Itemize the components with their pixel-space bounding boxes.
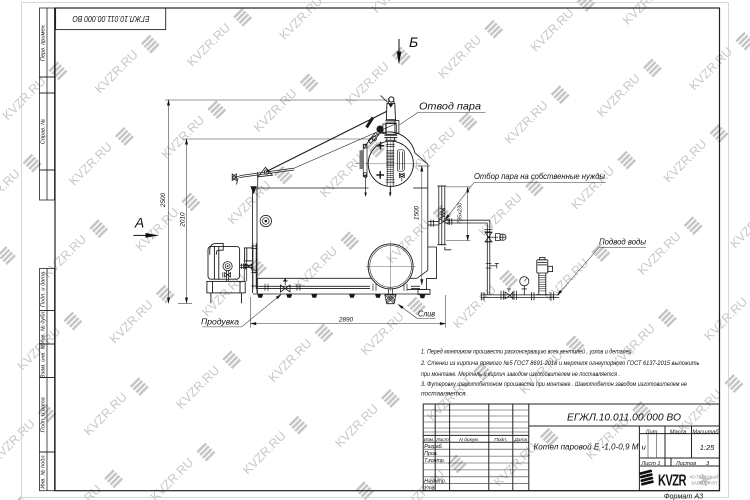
- svg-text:Подвод воды: Подвод воды: [599, 237, 646, 247]
- svg-text:2010: 2010: [179, 212, 186, 228]
- svg-text:KVZR.RU: KVZR.RU: [476, 190, 525, 239]
- svg-text:Взам. инв. №: Взам. инв. №: [41, 343, 47, 378]
- svg-text:KVZR.RU: KVZR.RU: [81, 390, 130, 439]
- svg-text:2. Стенки из кирпича прямого: 2. Стенки из кирпича прямого №5 ГОСТ 869…: [420, 360, 699, 367]
- svg-text:KVZR.RU: KVZR.RU: [174, 363, 223, 412]
- svg-text:KVZR.RU: KVZR.RU: [148, 455, 197, 500]
- svg-text:KVZR.RU: KVZR.RU: [41, 232, 90, 281]
- svg-text:KVZR.RU: KVZR.RU: [358, 309, 407, 358]
- svg-text:KVZR.RU: KVZR.RU: [15, 324, 64, 373]
- svg-text:Подп. и дата: Подп. и дата: [41, 272, 47, 307]
- svg-text:ЗАВОД РЭП: ЗАВОД РЭП: [691, 481, 718, 486]
- svg-text:при монтаже. Мертель и кирпич: при монтаже. Мертель и кирпич заводом из…: [421, 370, 620, 378]
- svg-text:Подп. и дата: Подп. и дата: [41, 397, 47, 432]
- svg-text:KVZR.RU: KVZR.RU: [292, 244, 341, 293]
- svg-text:Лит.: Лит.: [645, 430, 659, 436]
- svg-text:KVZR.RU: KVZR.RU: [184, 21, 233, 70]
- svg-text:Лист: Лист: [435, 437, 449, 443]
- svg-text:KVZR: KVZR: [658, 473, 687, 490]
- svg-text:КОТЕЛЬНЫЙ: КОТЕЛЬНЫЙ: [690, 473, 720, 480]
- svg-text:KVZR.RU: KVZR.RU: [436, 33, 485, 82]
- svg-text:и: и: [642, 443, 647, 452]
- svg-text:Отбор пара на собственные нужд: Отбор пара на собственные нужды: [474, 171, 605, 181]
- svg-text:KVZR.RU: KVZR.RU: [107, 298, 156, 347]
- svg-text:3. Футеровку шамотобетоном пр: 3. Футеровку шамотобетоном произвести пр…: [421, 380, 687, 388]
- svg-text:1:25: 1:25: [700, 443, 715, 452]
- svg-text:KVZR.RU: KVZR.RU: [277, 0, 326, 43]
- svg-text:KVZR.RU: KVZR.RU: [92, 47, 141, 96]
- svg-text:KVZR.RU: KVZR.RU: [0, 417, 38, 466]
- svg-text:2500: 2500: [160, 192, 167, 208]
- svg-text:Т.контр.: Т.контр.: [424, 458, 445, 464]
- svg-text:А: А: [134, 215, 144, 231]
- svg-text:KVZR.RU: KVZR.RU: [727, 202, 750, 251]
- svg-text:Масса: Масса: [670, 430, 687, 436]
- svg-text:KVZR.RU: KVZR.RU: [676, 387, 725, 436]
- svg-text:KVZR.RU: KVZR.RU: [702, 295, 750, 344]
- svg-text:Лист 1: Лист 1: [640, 461, 660, 467]
- svg-text:Формат А3: Формат А3: [664, 492, 703, 500]
- svg-text:Справ. №: Справ. №: [41, 119, 47, 144]
- svg-text:ЕГЖЛ.10.011.00.000 ВО: ЕГЖЛ.10.011.00.000 ВО: [567, 412, 681, 424]
- svg-text:Отвод пара: Отвод пара: [419, 101, 481, 113]
- svg-text:KVZR.RU: KVZR.RU: [0, 167, 23, 216]
- svg-text:KVZR.RU: KVZR.RU: [620, 0, 669, 28]
- svg-text:1500: 1500: [414, 205, 421, 220]
- svg-text:ЕГЖЛ.10.011.00.000 ВО: ЕГЖЛ.10.011.00.000 ВО: [73, 14, 150, 23]
- svg-text:KVZR.RU: KVZR.RU: [594, 71, 643, 120]
- svg-text:Инв. № подл.: Инв. № подл.: [41, 454, 47, 489]
- svg-text:Подп.: Подп.: [494, 437, 507, 443]
- svg-text:KVZR.RU: KVZR.RU: [225, 178, 274, 227]
- svg-text:KVZR.RU: KVZR.RU: [450, 283, 499, 332]
- svg-text:KVZR.RU: KVZR.RU: [528, 6, 577, 55]
- svg-text:Листов: Листов: [675, 461, 696, 467]
- svg-text:Инв. № дубл.: Инв. № дубл.: [41, 310, 47, 344]
- svg-text:KVZR.RU: KVZR.RU: [199, 271, 248, 320]
- svg-text:KVZR.RU: KVZR.RU: [66, 140, 115, 189]
- svg-text:Масштаб: Масштаб: [692, 430, 719, 436]
- svg-text:Н.контр.: Н.контр.: [424, 479, 446, 485]
- svg-text:Перв. примен.: Перв. примен.: [41, 24, 47, 61]
- svg-text:Слив: Слив: [418, 309, 436, 319]
- svg-text:Котел паровой Е -1,0-0,9 М: Котел паровой Е -1,0-0,9 М: [534, 442, 640, 452]
- svg-text:KVZR.RU: KVZR.RU: [266, 336, 315, 385]
- svg-text:KVZR.RU: KVZR.RU: [240, 429, 289, 478]
- svg-text:KVZR.RU: KVZR.RU: [0, 74, 49, 123]
- svg-text:Изм.: Изм.: [424, 437, 434, 443]
- svg-text:Разраб.: Разраб.: [424, 444, 443, 450]
- svg-text:Пров.: Пров.: [424, 451, 438, 457]
- svg-text:KVZR.RU: KVZR.RU: [159, 113, 208, 162]
- svg-text:KVZR.RU: KVZR.RU: [384, 217, 433, 266]
- svg-text:795х230: 795х230: [457, 202, 463, 224]
- svg-text:KVZR.RU: KVZR.RU: [343, 59, 392, 108]
- svg-text:Б: Б: [409, 34, 418, 50]
- svg-text:KVZR.RU: KVZR.RU: [317, 152, 366, 201]
- svg-text:Утв.: Утв.: [424, 485, 436, 491]
- svg-text:KVZR.RU: KVZR.RU: [661, 137, 710, 186]
- svg-text:N докум.: N докум.: [459, 437, 479, 443]
- svg-text:KVZR.RU: KVZR.RU: [332, 402, 381, 451]
- svg-text:Продувка: Продувка: [201, 317, 239, 327]
- svg-text:1. Перед монтажом произвести: 1. Перед монтажом произвести расконсерва…: [421, 348, 635, 356]
- svg-text:KVZR.RU: KVZR.RU: [502, 98, 551, 147]
- svg-text:KVZR.RU: KVZR.RU: [251, 86, 300, 135]
- svg-text:2890: 2890: [338, 316, 354, 323]
- svg-text:поставляется.: поставляется.: [421, 391, 467, 398]
- svg-text:Дата: Дата: [513, 437, 527, 443]
- svg-text:KVZR.RU: KVZR.RU: [410, 125, 459, 174]
- svg-text:KVZR.RU: KVZR.RU: [687, 44, 736, 93]
